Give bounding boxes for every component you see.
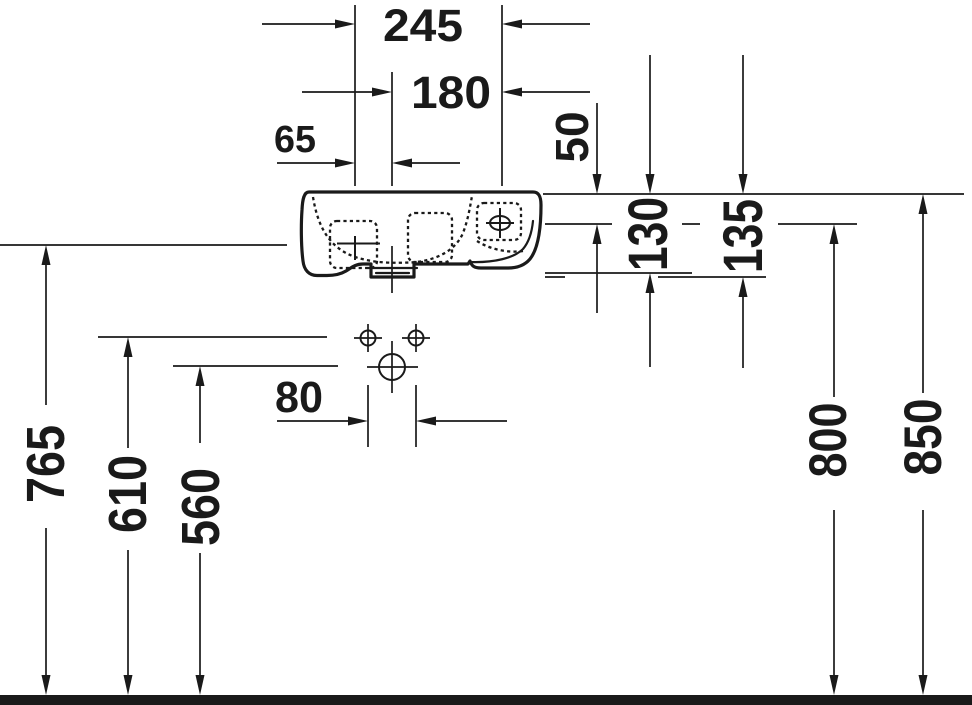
floor-line [0,695,972,705]
dim-765: 765 [16,245,76,695]
arrowhead-left-icon [502,88,522,97]
left-hole-crosshair-icon [337,236,380,260]
dim-label-850: 850 [894,399,953,476]
arrowhead-right-icon [335,20,355,29]
dim-label-560: 560 [171,468,231,546]
arrowhead-down-icon [124,675,133,695]
arrowhead-right-icon [348,417,368,426]
basin-outer-outline [301,192,541,277]
dim-label-245: 245 [383,0,463,51]
dim-80: 80 [275,373,507,447]
dim-label-50: 50 [546,111,598,162]
arrowhead-down-icon [739,174,748,194]
tap-platform-lower-hidden-edge [477,241,523,252]
arrowhead-up-icon [646,273,655,293]
arrowhead-down-icon [42,675,51,695]
dim-label-180: 180 [411,67,491,118]
arrowhead-right-icon [335,159,355,168]
washbasin-front-view [301,192,541,293]
arrowhead-up-icon [196,366,205,386]
dim-800: 800 [799,224,858,695]
arrowhead-left-icon [502,20,522,29]
fixing-holes [354,324,430,393]
dim-130: 130 [616,55,679,367]
center-punched-hole-area [408,213,452,262]
drain-outlet-icon [367,341,418,393]
dim-135: 135 [711,55,774,368]
dim-850: 850 [894,194,953,695]
dim-label-135: 135 [711,199,774,273]
dim-50: 50 [546,103,602,313]
dimension-drawing: 245 180 65 80 [0,0,972,705]
dim-610: 610 [98,337,158,695]
reference-lines-left [0,245,338,366]
arrowhead-up-icon [593,224,602,244]
dim-label-80: 80 [275,373,323,422]
fixing-hole-left-icon [354,324,382,352]
arrowhead-down-icon [919,675,928,695]
dim-65: 65 [274,119,460,168]
dim-label-65: 65 [274,119,316,161]
arrowhead-up-icon [124,337,133,357]
arrowhead-up-icon [830,224,839,244]
arrowhead-down-icon [593,174,602,194]
dim-label-610: 610 [98,455,158,533]
arrowhead-down-icon [196,675,205,695]
arrowhead-up-icon [919,194,928,214]
arrowhead-up-icon [739,277,748,297]
dim-label-765: 765 [16,425,76,503]
tap-hole-marker-icon [486,208,514,238]
dim-560: 560 [171,366,231,695]
arrowhead-up-icon [42,245,51,265]
dim-label-800: 800 [799,403,858,478]
arrowhead-down-icon [646,174,655,194]
arrowhead-left-icon [392,159,412,168]
arrowhead-right-icon [372,88,392,97]
fixing-hole-right-icon [402,324,430,352]
arrowhead-down-icon [830,675,839,695]
dim-label-130: 130 [616,197,679,271]
arrowhead-left-icon [416,417,436,426]
